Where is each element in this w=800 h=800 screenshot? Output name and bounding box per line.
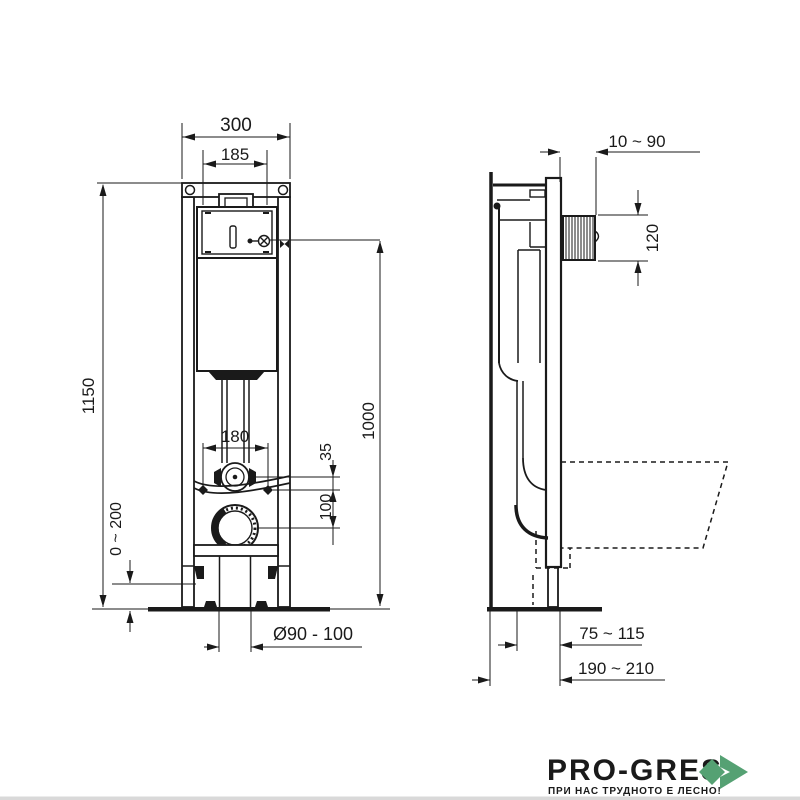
base-pad-right xyxy=(255,601,268,607)
brand-tagline: ПРИ НАС ТРУДНОТО Е ЛЕСНО! xyxy=(548,786,722,797)
dim-fixing-spacing-label: 180 xyxy=(221,427,249,446)
cistern-tank xyxy=(197,258,277,371)
brand-logo: PRO-GRES ПРИ НАС ТРУДНОТО Е ЛЕСНО! xyxy=(547,754,748,797)
front-left-rail xyxy=(182,197,194,607)
front-view: 300 185 1150 0 ~ 200 180 35 100 1000 Ø90… xyxy=(79,115,390,652)
side-base-plate xyxy=(487,607,602,612)
cross-member xyxy=(194,545,278,556)
dim-flush-height-label: 1000 xyxy=(359,402,378,440)
side-dimensions xyxy=(472,149,700,687)
flush-window-outer xyxy=(197,207,277,258)
dim-sleeve-height-label: 120 xyxy=(643,224,662,252)
side-view: 10 ~ 90 120 75 ~ 115 190 ~ 210 xyxy=(472,132,728,686)
dim-overall-height-label: 1150 xyxy=(79,378,98,415)
front-right-rail xyxy=(278,197,290,607)
footer-strip xyxy=(0,797,800,800)
front-base-plate xyxy=(148,607,330,612)
side-foot xyxy=(548,567,558,607)
wc-frame-drawing: 300 185 1150 0 ~ 200 180 35 100 1000 Ø90… xyxy=(0,0,800,800)
dim-drain-depth-label: 75 ~ 115 xyxy=(579,624,644,643)
wc-bowl-outline xyxy=(533,462,728,605)
dim-cistern-width-label: 185 xyxy=(221,145,249,164)
foot-clamp-right xyxy=(268,566,278,579)
base-pad-left xyxy=(204,601,217,607)
flush-valve-seat xyxy=(208,371,265,380)
cistern-handle xyxy=(219,194,253,207)
dim-frame-depth-label: 190 ~ 210 xyxy=(578,659,654,678)
foot-clamp-left xyxy=(194,566,204,579)
dim-wall-offset-label: 10 ~ 90 xyxy=(608,132,665,151)
side-rail xyxy=(546,178,561,567)
wc-bracket xyxy=(194,476,290,493)
side-cistern xyxy=(493,185,548,538)
dim-drain-offset-label: 100 xyxy=(318,494,335,521)
dim-drain-diameter-label: Ø90 - 100 xyxy=(273,624,353,644)
dim-supply-offset-label: 35 xyxy=(318,443,335,461)
flush-pipe xyxy=(222,380,249,463)
flush-sleeve xyxy=(560,216,599,260)
dim-overall-width-label: 300 xyxy=(220,115,252,136)
dim-foot-adjust-label: 0 ~ 200 xyxy=(108,502,125,556)
brand-name: PRO-GRES xyxy=(547,754,723,787)
technical-drawing-page: 300 185 1150 0 ~ 200 180 35 100 1000 Ø90… xyxy=(0,0,800,800)
